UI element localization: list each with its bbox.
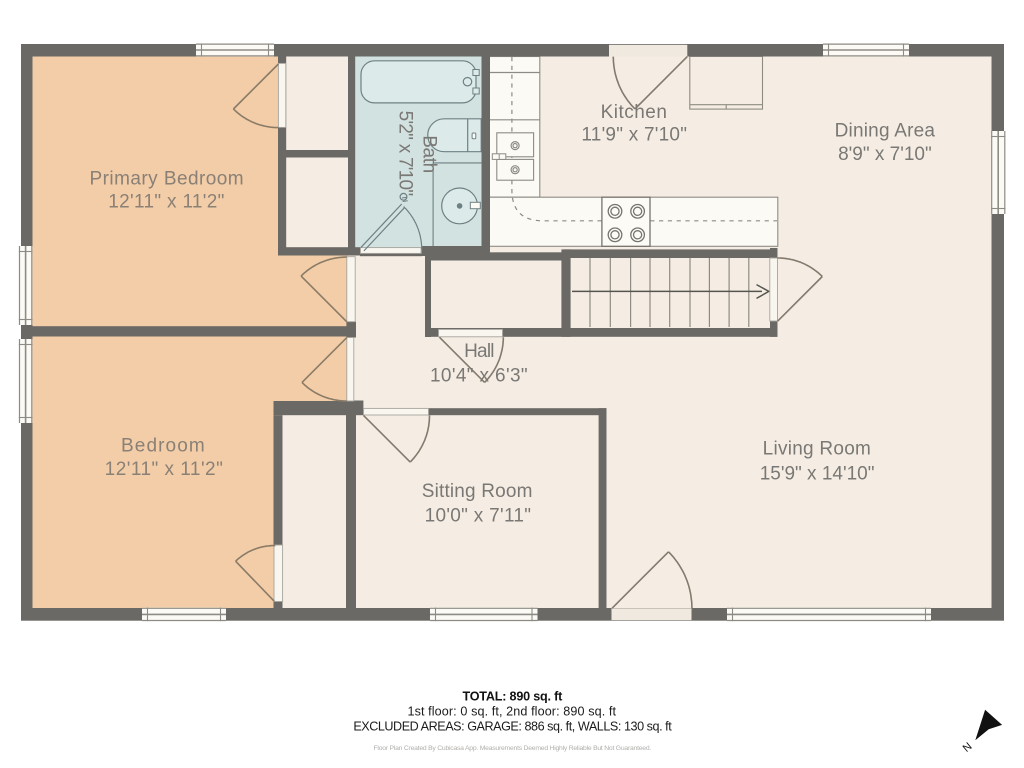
svg-text:N: N [961,741,975,755]
svg-text:Living Room: Living Room [763,438,871,459]
svg-text:EXCLUDED AREAS: GARAGE: 886 sq: EXCLUDED AREAS: GARAGE: 886 sq. ft, WALL… [353,720,672,734]
svg-text:Kitchen: Kitchen [601,102,668,123]
svg-text:Sitting Room: Sitting Room [422,481,533,502]
svg-text:Floor Plan Created By Cubicasa: Floor Plan Created By Cubicasa App. Meas… [374,745,652,752]
svg-text:Bedroom: Bedroom [121,436,206,457]
svg-text:12'11" x 11'2": 12'11" x 11'2" [108,192,224,213]
svg-text:Dining Area: Dining Area [835,121,936,142]
svg-text:5'2" x 7'10": 5'2" x 7'10" [395,111,416,196]
svg-text:15'9" x 14'10": 15'9" x 14'10" [760,464,875,485]
svg-text:12'11" x 11'2": 12'11" x 11'2" [105,459,224,480]
svg-text:1st floor: 0 sq. ft, 2nd floor: 1st floor: 0 sq. ft, 2nd floor: 890 sq. … [407,705,616,719]
svg-text:8'9" x 7'10": 8'9" x 7'10" [838,144,932,165]
svg-text:11'9" x 7'10": 11'9" x 7'10" [581,125,687,146]
svg-text:Primary Bedroom: Primary Bedroom [90,169,245,190]
svg-text:Bath: Bath [419,135,440,173]
svg-text:10'0" x 7'11": 10'0" x 7'11" [425,506,532,527]
svg-text:Hall: Hall [464,341,494,362]
svg-text:TOTAL: 890 sq. ft: TOTAL: 890 sq. ft [462,689,563,703]
svg-text:10'4" x 6'3": 10'4" x 6'3" [430,366,528,387]
